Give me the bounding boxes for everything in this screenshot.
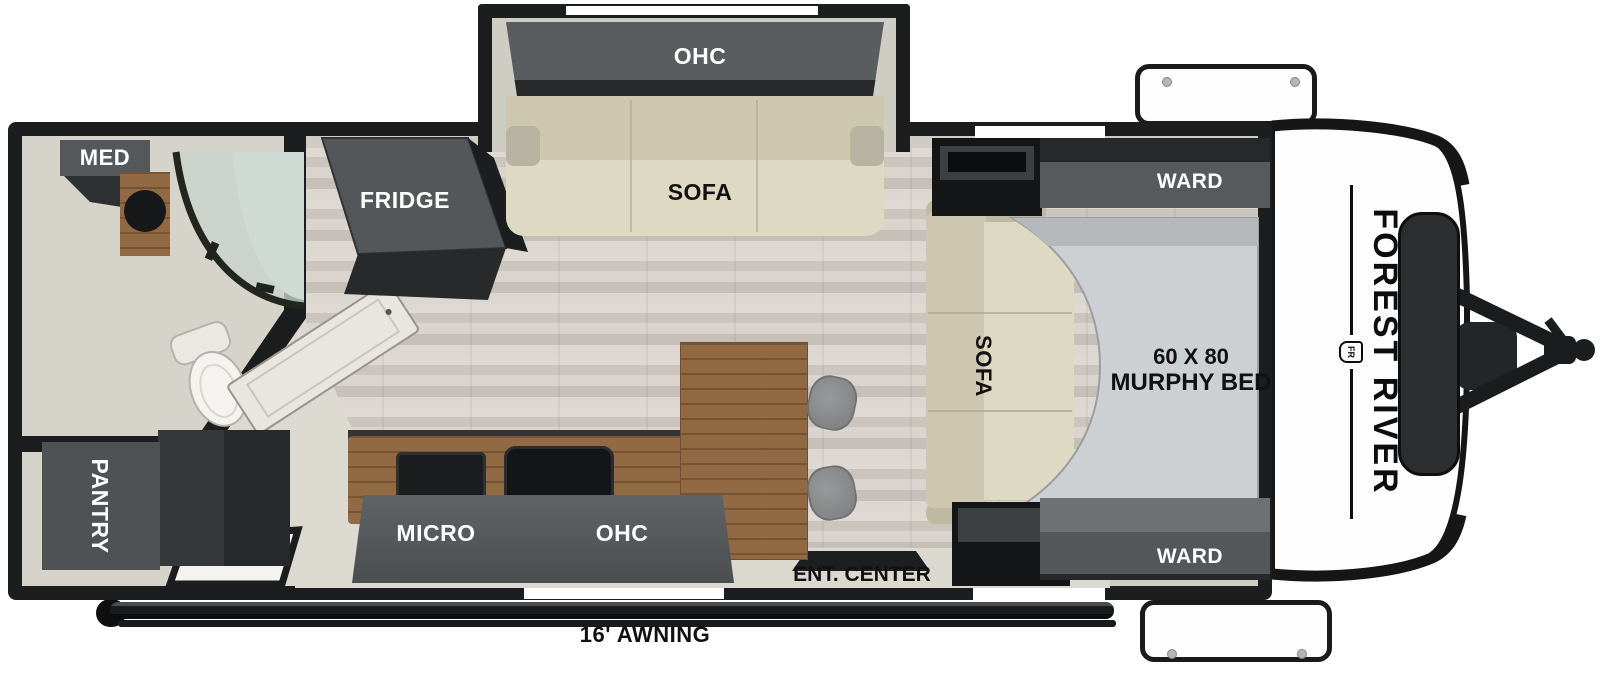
floorplan-canvas: MED FRIDGE OHC SOFA SOFA WARD WARD 60 X … [0, 0, 1600, 674]
slideout-sofa-armrest-right [850, 126, 884, 166]
brand-mark: FOREST RIVER FR [1342, 132, 1402, 572]
fridge-front [344, 248, 506, 300]
slideout-window [566, 6, 818, 15]
brand-rule: FR [1340, 185, 1364, 519]
forest-river-logo-icon: FR [1340, 341, 1364, 363]
pantry-label: PANTRY [86, 449, 114, 563]
slideout-sofa-armrest-left [506, 126, 540, 166]
entry-door-opening [973, 588, 1105, 600]
pantry-cabinet [158, 430, 290, 566]
brand-rule-line [1350, 369, 1353, 519]
wardrobe-bottom-label: WARD [1120, 544, 1260, 570]
kitchen-ohc-label: OHC [562, 520, 682, 546]
fridge-label: FRIDGE [330, 186, 480, 214]
ent-center-label: ENT. CENTER [772, 564, 952, 586]
murphy-bed-head-deck [1012, 218, 1258, 246]
sofa-seam [630, 100, 632, 232]
kitchen-window [524, 588, 724, 599]
awning-label: 16' AWNING [555, 622, 735, 648]
sofa-seam [756, 100, 758, 232]
bedroom-window [975, 126, 1105, 138]
brand-rule-line [1350, 185, 1353, 335]
bath-sink [124, 190, 166, 232]
slideout-sofa-label: SOFA [640, 178, 760, 206]
micro-label: MICRO [366, 520, 506, 546]
nightstand-top [932, 138, 1042, 216]
bedroom-sofa-label: SOFA [970, 311, 996, 421]
slideout-ohc-label: OHC [640, 42, 760, 70]
murphy-bed-label: 60 X 80 MURPHY BED [1086, 342, 1296, 398]
murphy-bed-size: 60 X 80 [1153, 344, 1229, 369]
brand-name: FOREST RIVER [1366, 208, 1405, 495]
med-label: MED [60, 140, 150, 176]
murphy-bed-name: MURPHY BED [1111, 369, 1272, 396]
wardrobe-top-label: WARD [1120, 168, 1260, 196]
nightstand-slot [948, 152, 1026, 172]
slideout-sofa-back [506, 96, 884, 160]
